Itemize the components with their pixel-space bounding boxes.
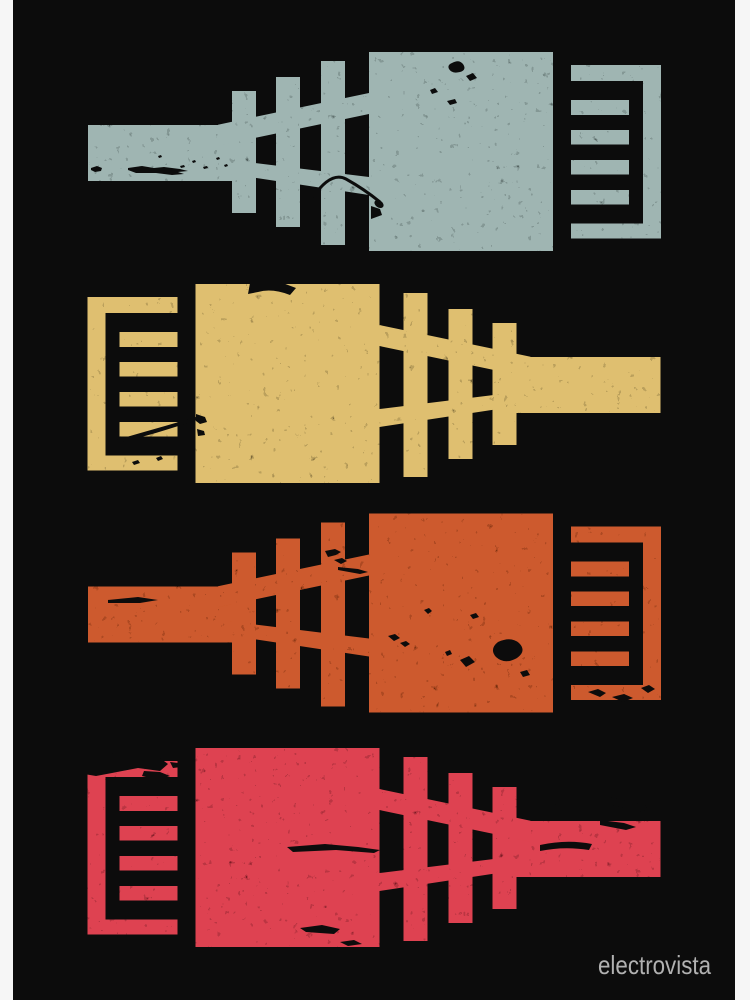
svg-text:electrovista: electrovista xyxy=(598,950,711,980)
